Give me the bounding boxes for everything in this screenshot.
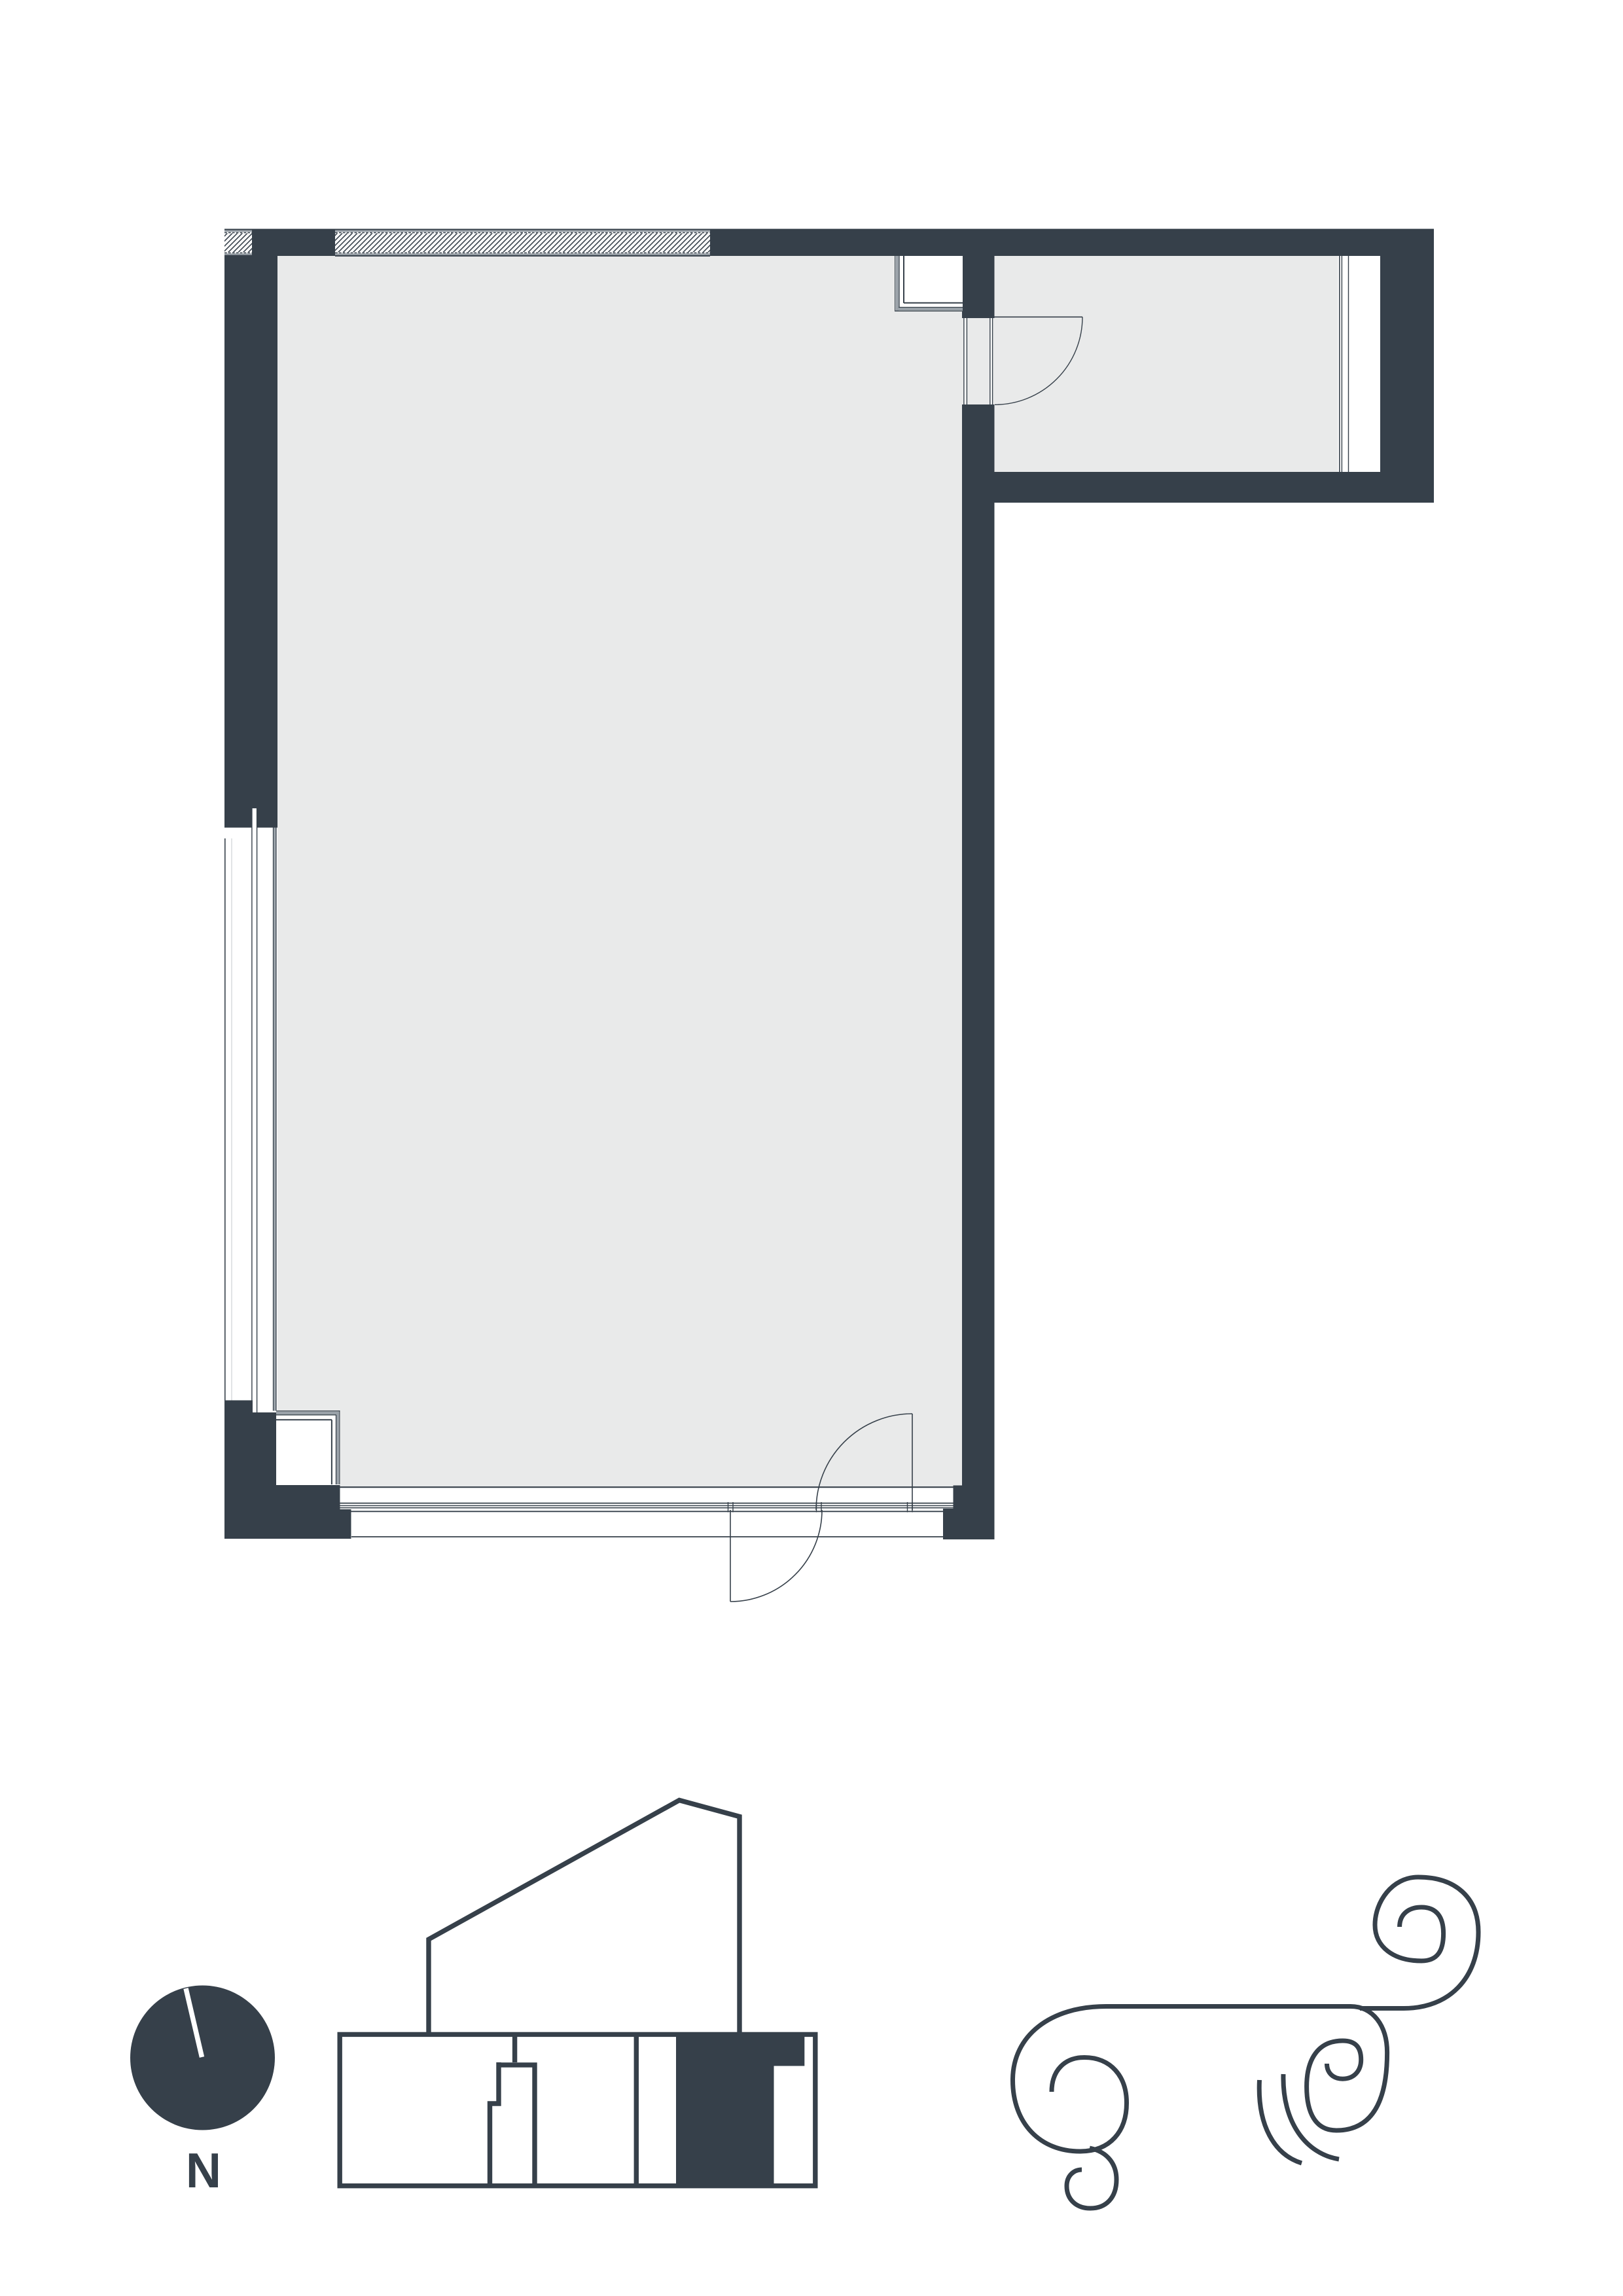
svg-text:N: N <box>186 2143 221 2198</box>
